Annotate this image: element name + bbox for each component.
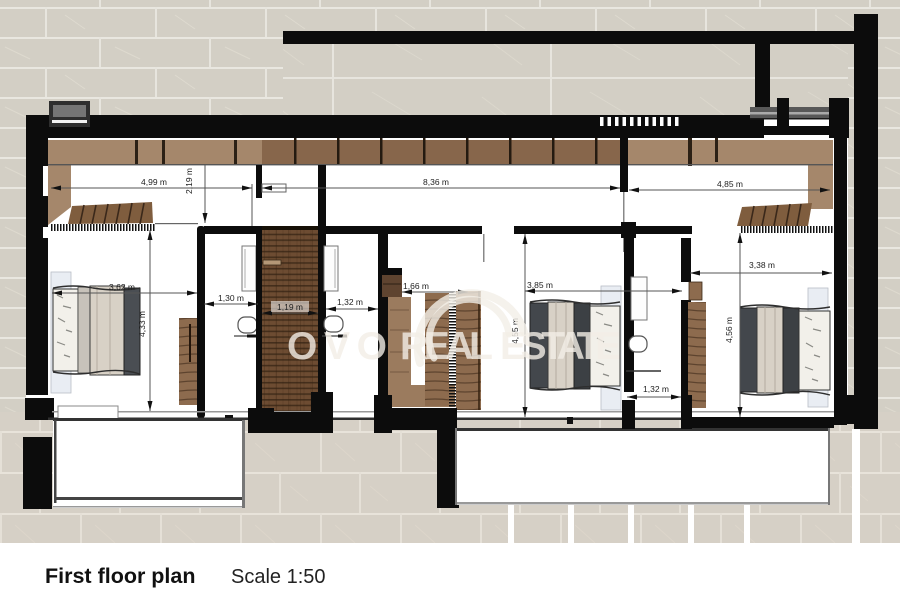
- svg-text:OVO: OVO: [287, 325, 387, 368]
- svg-text:4,33 m: 4,33 m: [137, 311, 147, 337]
- svg-text:1,19 m: 1,19 m: [277, 302, 303, 312]
- svg-text:1,30 m: 1,30 m: [218, 293, 244, 303]
- svg-text:Scale 1:50: Scale 1:50: [231, 566, 326, 588]
- svg-text:2,19 m: 2,19 m: [184, 168, 194, 194]
- svg-text:4,99 m: 4,99 m: [141, 177, 167, 187]
- svg-text:3,62 m: 3,62 m: [109, 282, 135, 292]
- svg-text:REAL: REAL: [400, 325, 493, 368]
- svg-text:First floor plan: First floor plan: [45, 564, 196, 588]
- svg-text:4,85 m: 4,85 m: [717, 179, 743, 189]
- svg-text:8,36 m: 8,36 m: [423, 177, 449, 187]
- svg-text:1,66 m: 1,66 m: [403, 281, 429, 291]
- svg-text:1,32 m: 1,32 m: [337, 297, 363, 307]
- svg-text:4,56 m: 4,56 m: [724, 317, 734, 343]
- svg-text:1,32 m: 1,32 m: [643, 384, 669, 394]
- svg-text:3,38 m: 3,38 m: [749, 260, 775, 270]
- svg-text:ESTATE: ESTATE: [500, 325, 621, 368]
- svg-text:3,85 m: 3,85 m: [527, 280, 553, 290]
